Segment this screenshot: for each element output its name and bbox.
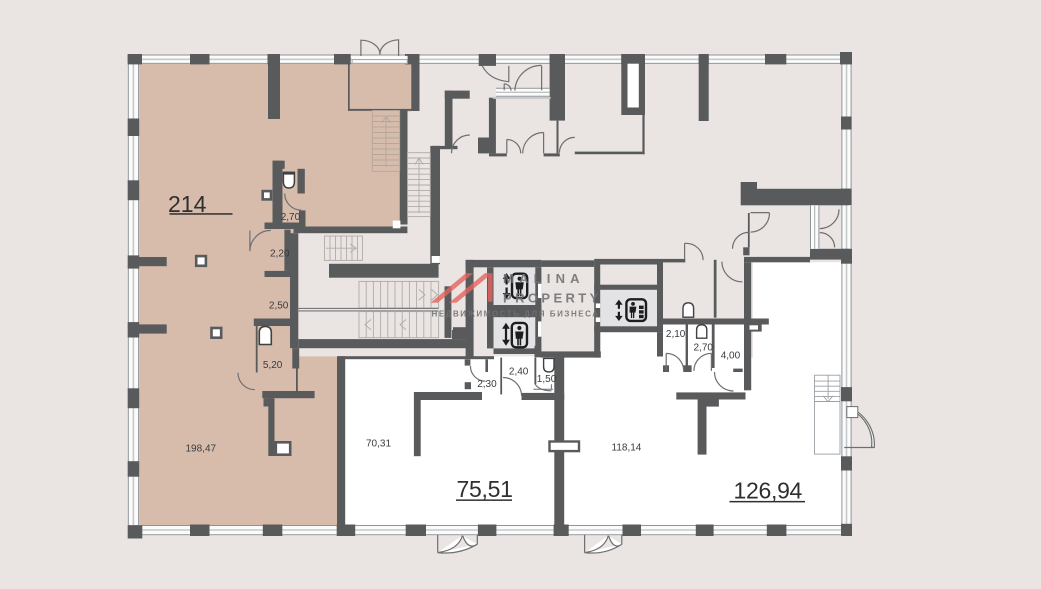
svg-text:198,47: 198,47 xyxy=(186,444,217,455)
svg-text:214: 214 xyxy=(168,191,207,217)
svg-text:2,10: 2,10 xyxy=(666,329,686,340)
svg-text:2,30: 2,30 xyxy=(477,379,497,390)
svg-text:1,50: 1,50 xyxy=(537,374,557,385)
svg-text:5,20: 5,20 xyxy=(263,360,283,371)
svg-text:MALINA: MALINA xyxy=(503,271,585,286)
svg-text:126,94: 126,94 xyxy=(734,477,803,503)
svg-text:2,70: 2,70 xyxy=(281,212,301,223)
svg-text:2,70: 2,70 xyxy=(694,343,714,354)
svg-text:2,20: 2,20 xyxy=(270,249,290,260)
svg-text:4,00: 4,00 xyxy=(721,351,741,362)
svg-text:2,50: 2,50 xyxy=(269,301,289,312)
svg-text:70,31: 70,31 xyxy=(366,439,391,450)
svg-text:75,51: 75,51 xyxy=(457,476,513,502)
svg-text:118,14: 118,14 xyxy=(612,443,642,454)
svg-text:НЕДВИЖИМОСТЬ ДЛЯ БИЗНЕСА: НЕДВИЖИМОСТЬ ДЛЯ БИЗНЕСА xyxy=(432,310,600,319)
svg-text:PROPERTY: PROPERTY xyxy=(503,290,602,305)
svg-text:2,40: 2,40 xyxy=(509,367,529,378)
